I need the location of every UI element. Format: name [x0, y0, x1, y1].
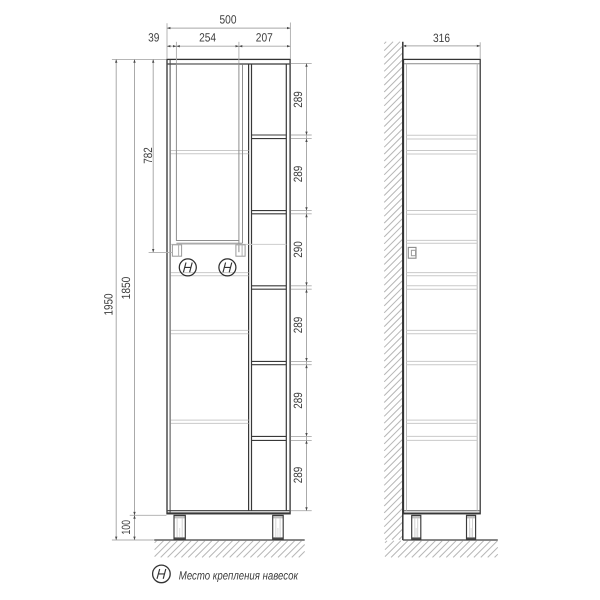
svg-text:289: 289: [291, 316, 305, 333]
svg-text:289: 289: [291, 392, 305, 409]
svg-text:289: 289: [291, 91, 305, 108]
svg-text:Место крепления навесок: Место крепления навесок: [179, 569, 299, 583]
svg-text:782: 782: [141, 147, 155, 164]
svg-text:289: 289: [291, 165, 305, 182]
svg-text:207: 207: [256, 31, 273, 45]
svg-text:500: 500: [220, 13, 237, 27]
svg-text:254: 254: [199, 31, 216, 45]
svg-text:1950: 1950: [101, 293, 115, 315]
svg-text:289: 289: [291, 466, 305, 483]
svg-text:100: 100: [119, 520, 133, 535]
svg-text:290: 290: [291, 241, 305, 258]
svg-text:39: 39: [148, 31, 160, 45]
svg-text:1850: 1850: [119, 276, 133, 299]
svg-text:316: 316: [433, 31, 450, 45]
